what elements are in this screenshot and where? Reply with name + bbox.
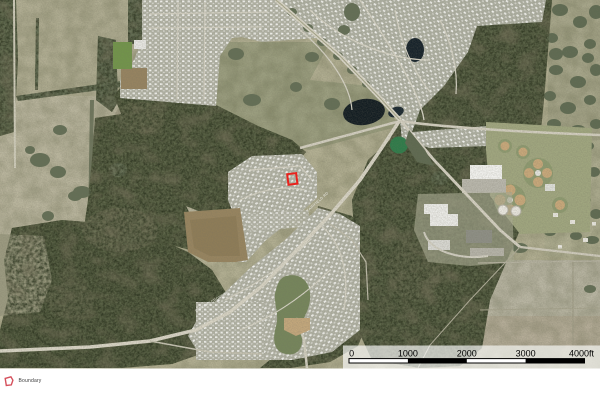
svg-text:Boundary: Boundary xyxy=(19,378,42,384)
svg-text:4000ft: 4000ft xyxy=(569,349,595,359)
svg-text:1000: 1000 xyxy=(398,349,418,359)
svg-text:2000: 2000 xyxy=(457,349,477,359)
svg-text:3000: 3000 xyxy=(516,349,536,359)
svg-text:0: 0 xyxy=(349,349,354,359)
